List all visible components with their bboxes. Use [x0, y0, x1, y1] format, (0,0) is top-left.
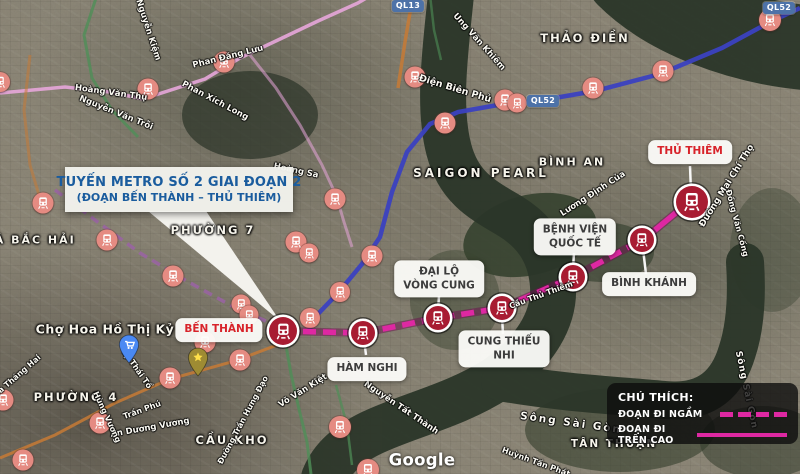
legend-item-underground: ĐOẠN ĐI NGẦM [618, 409, 787, 420]
station-marker-ham-nghi [351, 321, 375, 345]
map-label-xa-bac-hai: XÁ BẮC HẢI [0, 234, 76, 247]
map-label-thao-dien: THẢO ĐIỀN [540, 31, 630, 45]
map-label-saigon-pearl: SAIGON PEARL [413, 166, 549, 180]
station-label-cung-thieu-nhi: CUNG THIẾUNHI [459, 330, 550, 367]
station-marker-ben-thanh [269, 317, 297, 345]
station-label-ben-thanh: BẾN THÀNH [175, 318, 262, 342]
google-watermark: Google [389, 451, 456, 470]
title-callout: TUYẾN METRO SỐ 2 GIAI ĐOẠN 2 (ĐOẠN BẾN T… [65, 167, 293, 212]
legend-rows: ĐOẠN ĐI NGẦMĐOẠN ĐI TRÊN CAO [618, 409, 787, 446]
map-label-phuong-4: PHƯỜNG 4 [34, 390, 119, 404]
highway-shield-ql52: QL52 [527, 95, 559, 107]
station-marker-dai-lo-vong-cung [426, 306, 450, 330]
solid-line-sample [697, 433, 787, 438]
legend: CHÚ THÍCH: ĐOẠN ĐI NGẦMĐOẠN ĐI TRÊN CAO [607, 383, 798, 444]
title-line-1: TUYẾN METRO SỐ 2 GIAI ĐOẠN 2 [57, 175, 302, 190]
dashed-line-sample [720, 412, 787, 417]
legend-item-label: ĐOẠN ĐI TRÊN CAO [618, 424, 697, 446]
market-pin-icon [119, 334, 140, 368]
station-label-dai-lo-vong-cung: ĐẠI LỘVÒNG CUNG [394, 260, 484, 297]
highway-shield-ql13: QL13 [392, 0, 424, 12]
label-pointer-binh-khanh [643, 249, 646, 274]
title-line-2: (ĐOẠN BẾN THÀNH – THỦ THIÊM) [77, 191, 282, 204]
station-label-thu-thiem: THỦ THIÊM [648, 140, 732, 164]
station-label-ham-nghi: HÀM NGHI [327, 357, 406, 381]
map-label-phuong-7: PHƯỜNG 7 [171, 223, 256, 237]
route-outline [283, 202, 692, 333]
star-pin-icon [188, 347, 209, 381]
highway-shield-ql52: QL52 [763, 2, 795, 14]
station-marker-binh-khanh [630, 228, 654, 252]
map-label-cho-hoa-ho-thi-ky: Chợ Hoa Hồ Thị Kỷ [36, 322, 175, 337]
map-canvas: THẢO ĐIỀNBÌNH ANSAIGON PEARLPHƯỜNG 7XÁ B… [0, 0, 800, 474]
legend-item-label: ĐOẠN ĐI NGẦM [618, 409, 702, 420]
legend-title: CHÚ THÍCH: [618, 391, 787, 404]
legend-item-elevated: ĐOẠN ĐI TRÊN CAO [618, 424, 787, 446]
station-label-binh-khanh: BÌNH KHÁNH [602, 272, 696, 296]
station-label-benh-vien-quoc-te: BỆNH VIỆNQUỐC TẾ [534, 218, 616, 255]
